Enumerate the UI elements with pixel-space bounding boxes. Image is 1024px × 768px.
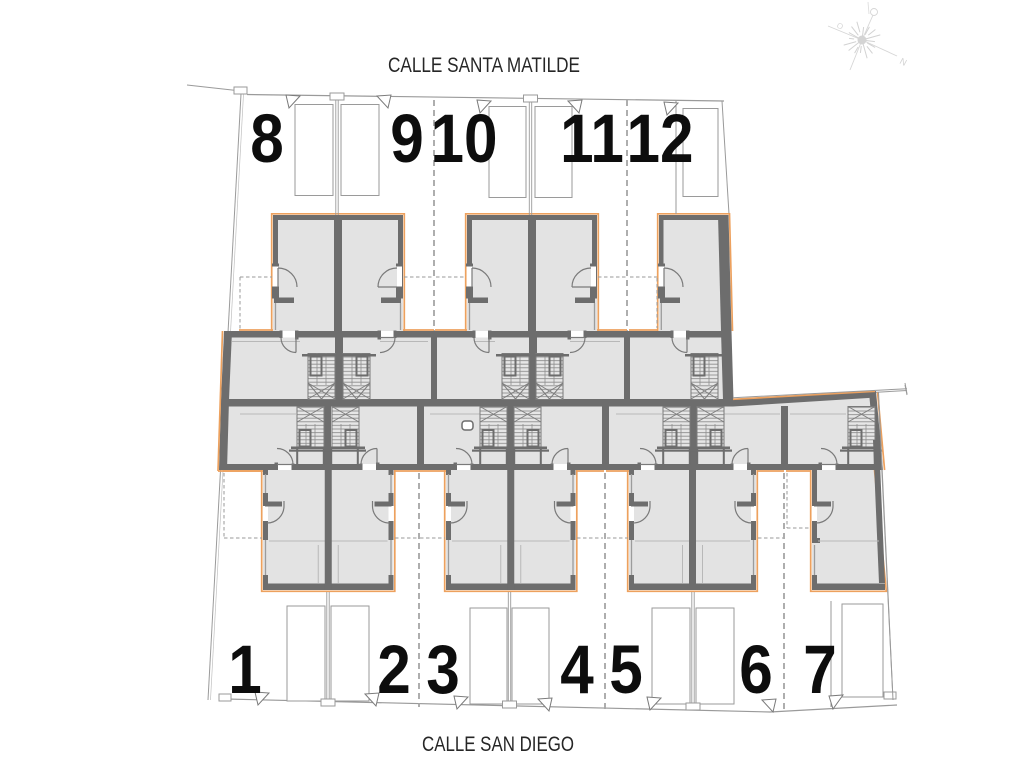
svg-text:1: 1 [228,631,262,707]
svg-text:8: 8 [250,100,284,176]
svg-text:4: 4 [560,631,594,707]
svg-text:5: 5 [609,631,643,707]
svg-text:11: 11 [560,100,624,176]
svg-text:2: 2 [377,631,411,707]
svg-text:9: 9 [390,100,424,176]
svg-text:3: 3 [426,631,460,707]
svg-text:CALLE SANTA MATILDE: CALLE SANTA MATILDE [388,53,580,77]
svg-text:7: 7 [803,631,837,707]
svg-text:CALLE SAN DIEGO: CALLE SAN DIEGO [422,732,574,756]
svg-text:12: 12 [626,100,693,176]
svg-text:6: 6 [739,631,773,707]
svg-text:10: 10 [430,100,497,176]
